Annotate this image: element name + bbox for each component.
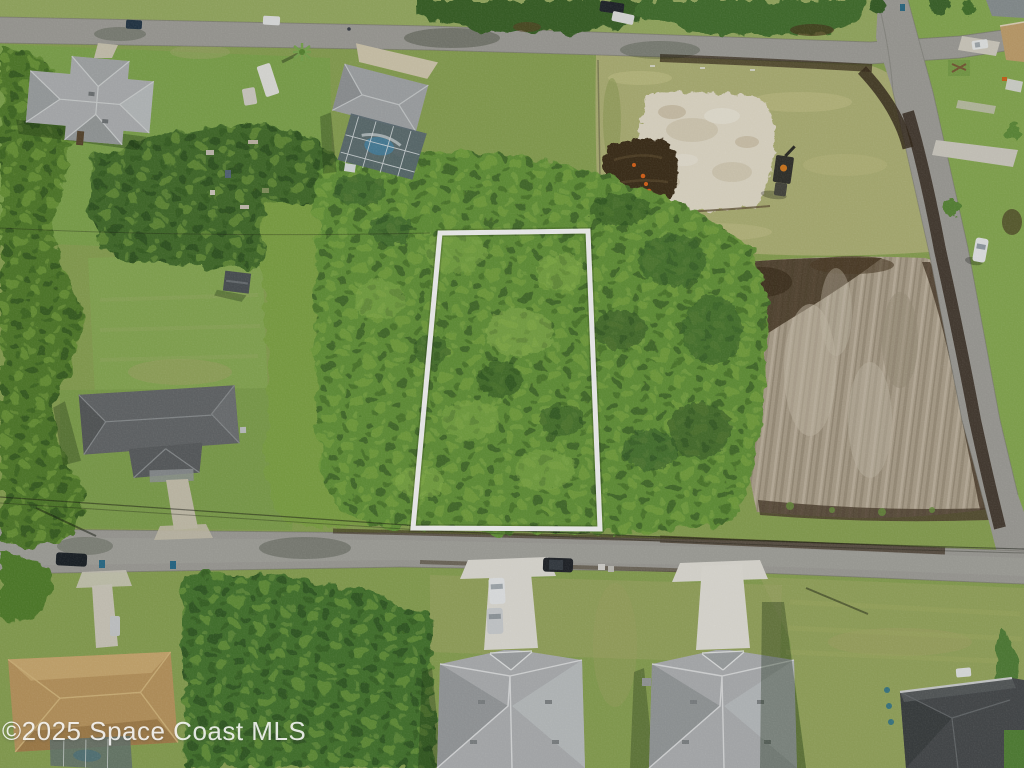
photo-grain-light xyxy=(0,0,1024,768)
aerial-photo: ©2025 Space Coast MLS xyxy=(0,0,1024,768)
aerial-photo-canvas xyxy=(0,0,1024,768)
